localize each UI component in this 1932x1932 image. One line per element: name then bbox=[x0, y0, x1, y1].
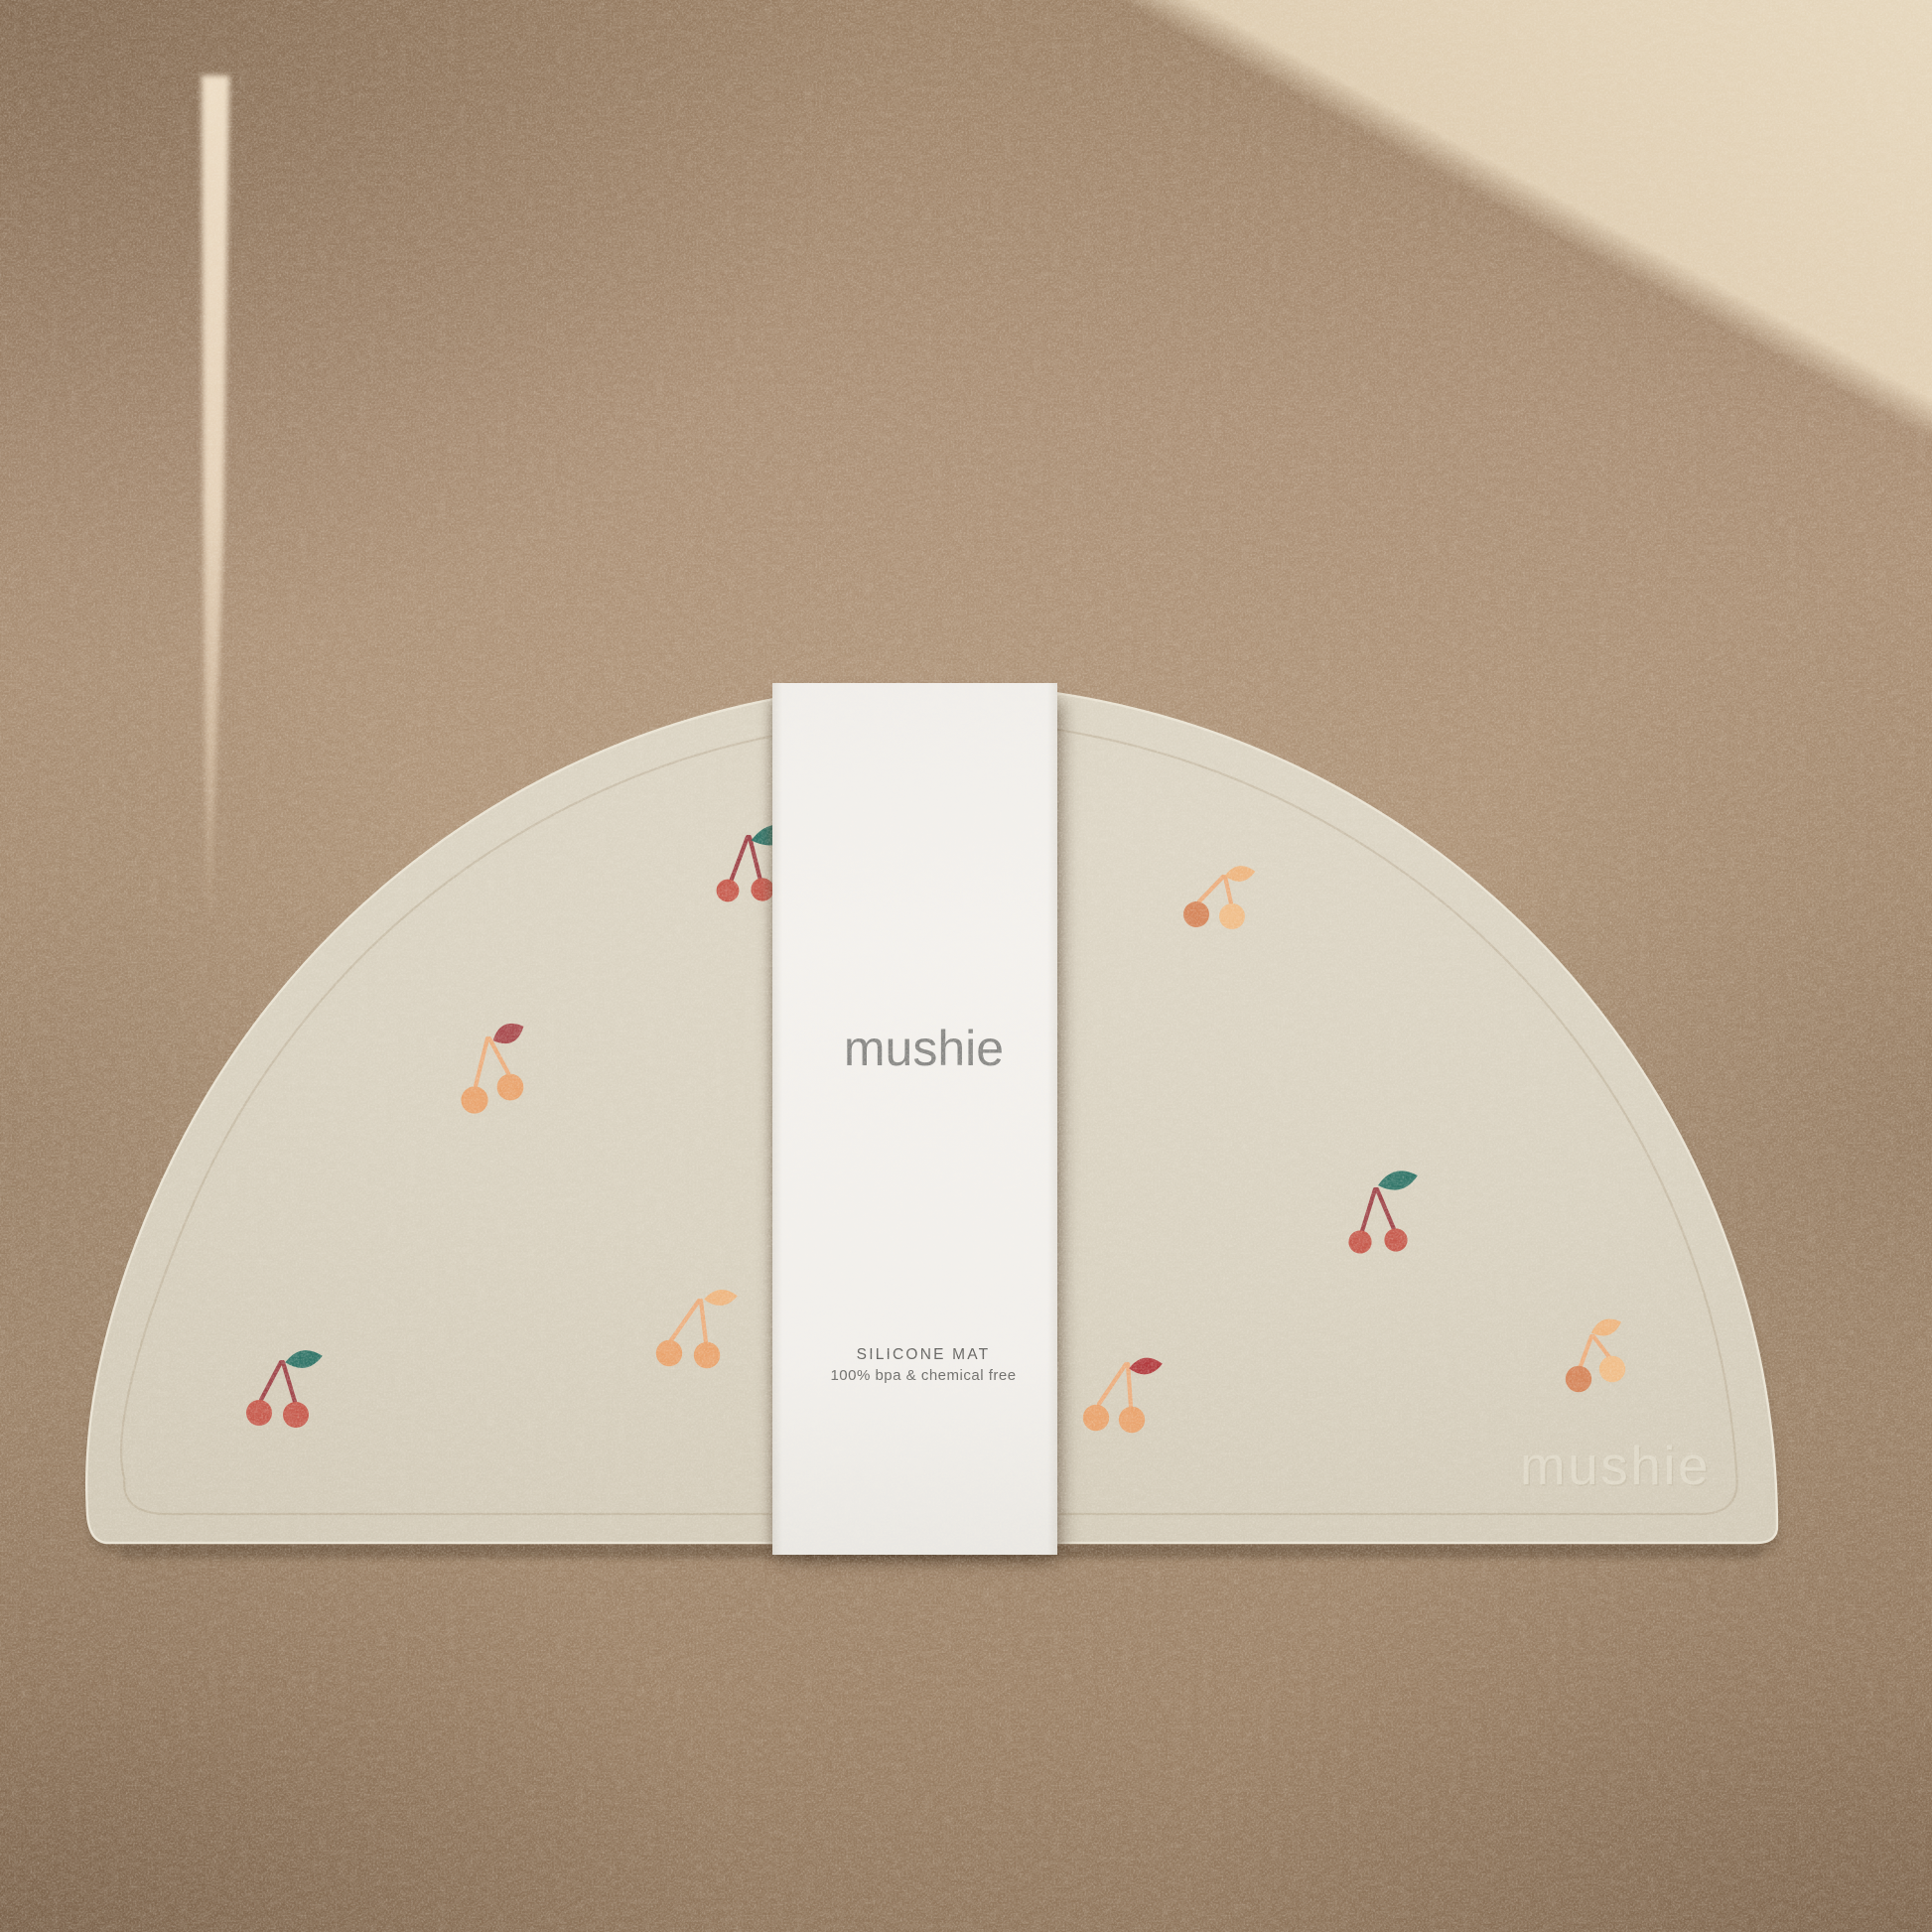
svg-text:mushie: mushie bbox=[1520, 1435, 1711, 1496]
